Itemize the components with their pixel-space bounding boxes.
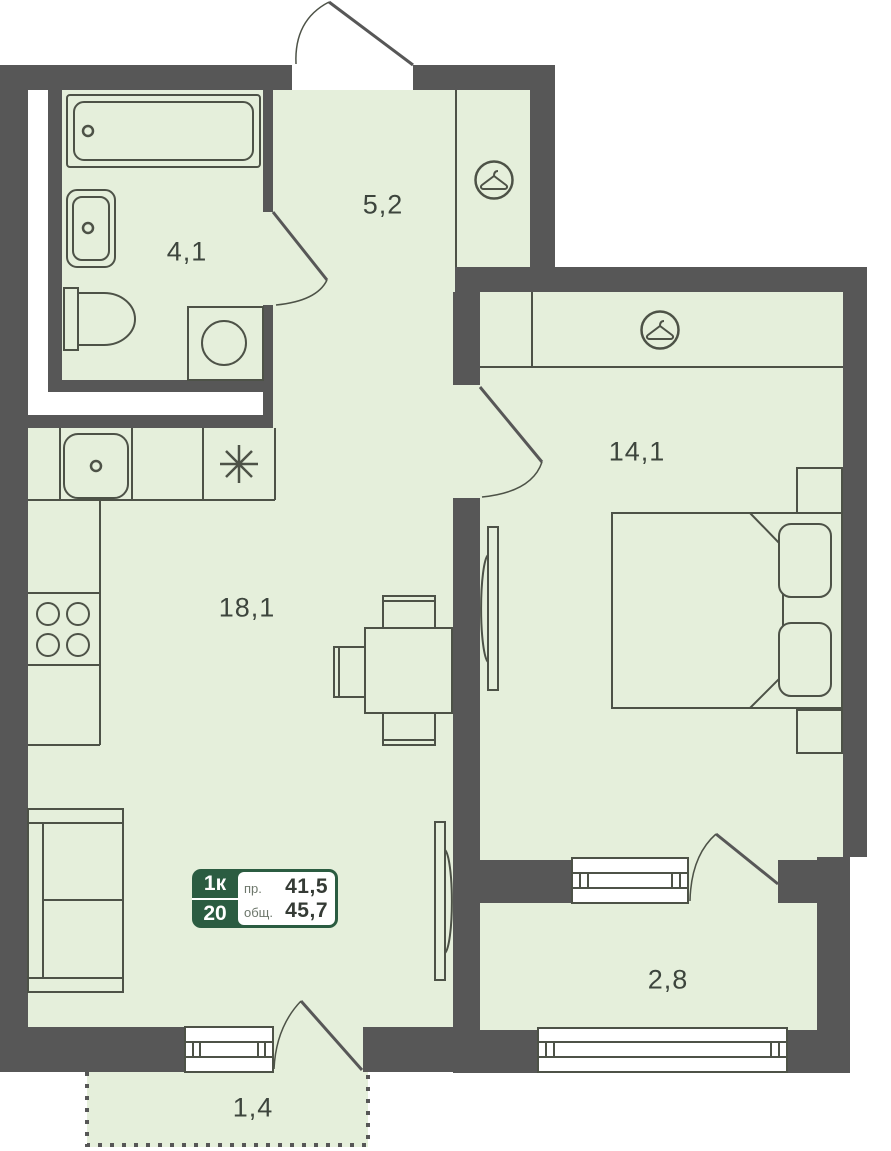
unit-number: 20 (192, 900, 238, 929)
dining-table (365, 628, 452, 713)
balcony-door (274, 1001, 362, 1070)
plan-linework (0, 0, 891, 1151)
total-area-value: 45,7 (285, 900, 328, 921)
window-living (185, 1027, 273, 1072)
washing-machine (188, 307, 263, 380)
total-area-label: общ. (244, 906, 273, 919)
chair (334, 596, 435, 745)
sofa (28, 809, 123, 992)
unit-badge-left: 1к 20 (192, 869, 238, 928)
bed (612, 513, 842, 708)
balcony-dashed-outline (87, 1072, 368, 1145)
asterisk-stove-icon (220, 445, 258, 483)
living-area-row: пр. 41,5 (244, 876, 328, 897)
kitchen-counter (28, 428, 275, 745)
window-loggia (538, 1028, 787, 1072)
kitchen-sink (64, 434, 128, 498)
room-label-hallway: 5,2 (363, 190, 404, 221)
living-area-value: 41,5 (285, 876, 328, 897)
wardrobe-bedroom (480, 292, 843, 367)
bedroom-door (480, 387, 542, 497)
floorplan-canvas: 4,1 5,2 14,1 18,1 2,8 1,4 1к 20 пр. 41,5… (0, 0, 891, 1151)
entrance-door (296, 2, 413, 65)
loggia-door (690, 834, 778, 901)
hanger-icon (642, 312, 679, 349)
unit-rooms-count: 1к (192, 869, 238, 900)
unit-badge-areas: пр. 41,5 общ. 45,7 (238, 872, 335, 925)
living-area-label: пр. (244, 882, 262, 895)
toilet (64, 288, 135, 350)
total-area-row: общ. 45,7 (244, 900, 328, 921)
window-bedroom (572, 858, 688, 903)
pillow (779, 623, 831, 696)
cooktop-burners (37, 603, 89, 656)
tv-bedroom (481, 527, 498, 690)
room-label-loggia: 2,8 (648, 965, 689, 996)
bathroom-door (273, 212, 327, 305)
tv-living (435, 822, 452, 980)
room-label-living: 18,1 (219, 593, 276, 624)
room-label-bedroom: 14,1 (609, 437, 666, 468)
bathroom-sink (67, 190, 115, 267)
unit-badge: 1к 20 пр. 41,5 общ. 45,7 (192, 869, 338, 928)
pillow (779, 524, 831, 597)
bathtub (67, 95, 260, 167)
nightstand (797, 468, 842, 513)
room-label-bathroom: 4,1 (167, 237, 208, 268)
nightstand (797, 710, 842, 753)
hanger-icon (476, 162, 513, 199)
room-label-balcony: 1,4 (233, 1093, 274, 1124)
